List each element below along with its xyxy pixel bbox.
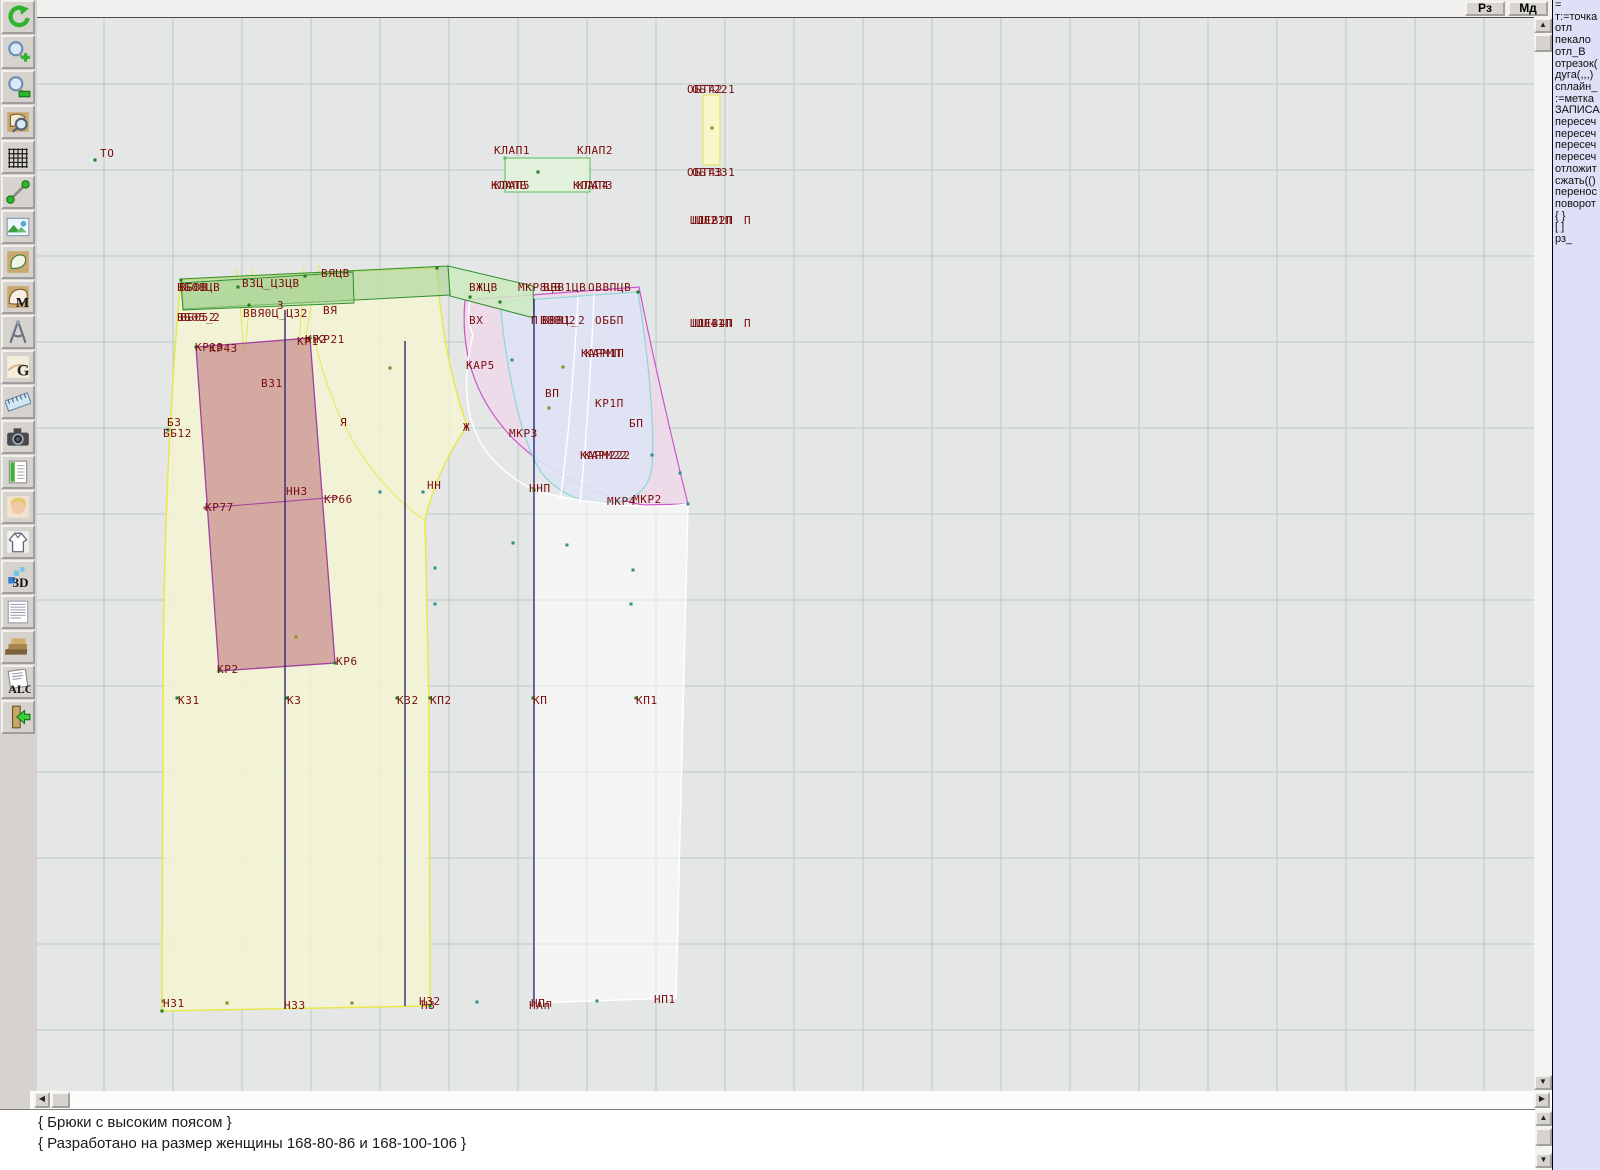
front-leg-piece[interactable] — [534, 490, 688, 1003]
construction-point — [562, 366, 565, 369]
pattern-label: НЗЗ — [284, 999, 306, 1012]
command-item[interactable]: = — [1553, 0, 1600, 12]
construction-point — [226, 1002, 229, 1005]
pattern-label: КЗ — [287, 694, 301, 707]
ruler-icon — [5, 389, 31, 415]
undo-button[interactable] — [1, 0, 35, 34]
construction-point — [566, 544, 569, 547]
command-item[interactable]: [ ] — [1553, 222, 1600, 234]
construction-point — [389, 367, 392, 370]
construction-point — [434, 567, 437, 570]
zoom-piece-button[interactable] — [1, 105, 35, 139]
pattern-label: КП — [533, 694, 547, 707]
zoom-in-button[interactable] — [1, 35, 35, 69]
pattern-label: КП1 — [636, 694, 658, 707]
segment-button[interactable] — [1, 175, 35, 209]
pattern-label: КАР5 — [466, 359, 495, 372]
camera-icon — [5, 424, 31, 450]
alg-button[interactable]: ALG — [1, 665, 35, 699]
canvas-hscrollbar[interactable]: ◀ ▶ — [30, 1091, 1552, 1109]
construction-point — [469, 296, 472, 299]
pattern-label: КР4З — [209, 342, 238, 355]
pattern-label: ВВВЦ2 — [540, 314, 576, 327]
pattern-label: МКР2 — [633, 493, 662, 506]
3d-icon: 3D — [5, 564, 31, 590]
construction-point — [304, 275, 307, 278]
svg-text:ALG: ALG — [8, 682, 31, 695]
pattern-piece-button[interactable] — [1, 245, 35, 279]
pattern-label: КР21 — [316, 333, 345, 346]
zoom-in-icon — [5, 39, 31, 65]
construction-point — [422, 491, 425, 494]
rz-button[interactable]: Рз — [1465, 1, 1505, 16]
pattern-label: БП — [629, 417, 643, 430]
command-list: =т:=точкаотлпекалоотл_Вотрезок(дуга(,,,)… — [1553, 0, 1600, 246]
compass-icon — [5, 319, 31, 345]
construction-point — [476, 1001, 479, 1004]
status-line-1: { Брюки с высоким поясом } — [38, 1114, 1535, 1131]
pattern-label: ТО — [100, 147, 114, 160]
table-icon — [5, 459, 31, 485]
command-item[interactable]: перенос — [1553, 187, 1600, 199]
status-scroll-down-button[interactable]: ▼ — [1535, 1153, 1552, 1168]
command-item[interactable]: пересеч — [1553, 140, 1600, 152]
construction-point — [436, 267, 439, 270]
pattern-label: ВЗЦ_ЦЗЦВ — [242, 277, 300, 290]
construction-point — [512, 542, 515, 545]
pattern-label: ВП — [545, 387, 559, 400]
pattern-label: З — [277, 299, 284, 312]
undo-icon — [5, 4, 31, 30]
image-icon — [5, 214, 31, 240]
garment-button[interactable] — [1, 525, 35, 559]
segment-icon — [5, 179, 31, 205]
command-item[interactable]: пересеч — [1553, 129, 1600, 141]
pattern-label: КЛАПБ — [491, 179, 527, 192]
construction-point — [711, 127, 714, 130]
construction-point — [499, 301, 502, 304]
garment-icon — [5, 529, 31, 555]
pattern-label: ОББП — [595, 314, 624, 327]
pattern-label: П — [744, 317, 751, 330]
image-button[interactable] — [1, 210, 35, 244]
pattern-canvas[interactable]: ТОКЛАП1КЛАП2КЛАП5КЛАПБКЛАП3КЛАП4ОБТ221ОБ… — [37, 17, 1534, 1091]
pattern-label: КР1П — [595, 397, 624, 410]
pattern-label: КЛАП1 — [494, 144, 530, 157]
command-item[interactable]: пересеч — [1553, 152, 1600, 164]
pattern-label: КР77 — [205, 501, 234, 514]
pattern-label: ВХ — [469, 314, 483, 327]
scroll-down-button[interactable]: ▼ — [1534, 1075, 1552, 1090]
pattern-label: НЗ — [421, 999, 435, 1012]
exit-button[interactable] — [1, 700, 35, 734]
construction-point — [679, 472, 682, 475]
pattern-label: КЗ1 — [178, 694, 200, 707]
portrait-button[interactable] — [1, 490, 35, 524]
pattern-label: ВВЯ0Ц_Ц32 — [243, 307, 308, 320]
books-button[interactable] — [1, 630, 35, 664]
construction-point — [237, 286, 240, 289]
pattern-label: ВЗ1 — [261, 377, 283, 390]
pattern-label: ОБТ42 — [687, 83, 723, 96]
pattern-label: НН — [427, 479, 441, 492]
pattern-label: ББ12 — [163, 427, 192, 440]
command-item[interactable]: отл — [1553, 23, 1600, 35]
pattern-label: КЛАП4 — [573, 179, 609, 192]
command-item[interactable]: отл_В — [1553, 47, 1600, 59]
pattern-label: КР66 — [324, 493, 353, 506]
pattern-label: ОБТ43 — [687, 166, 723, 179]
pattern-cad-window: M G 3D ALG Рз Мд — [0, 0, 1600, 1170]
command-item[interactable]: сжать(() — [1553, 176, 1600, 188]
svg-text:G: G — [17, 362, 30, 380]
construction-point — [548, 407, 551, 410]
zoom-out-icon — [5, 74, 31, 100]
pattern-label: ШЛ21П — [696, 214, 732, 227]
svg-text:M: M — [16, 295, 29, 310]
command-item[interactable]: рз_ — [1553, 234, 1600, 246]
books-icon — [5, 634, 31, 660]
3d-button[interactable]: 3D — [1, 560, 35, 594]
text-list-button[interactable] — [1, 595, 35, 629]
construction-point — [351, 1002, 354, 1005]
status-panel: { Брюки с высоким поясом } { Разработано… — [0, 1109, 1535, 1170]
grazia-g-icon: G — [5, 354, 31, 380]
construction-point — [434, 603, 437, 606]
pattern-label: ВЯ — [323, 304, 337, 317]
construction-point — [379, 491, 382, 494]
pattern-label: НН3 — [286, 485, 308, 498]
canvas-vscrollbar[interactable]: ▲ ▼ — [1534, 17, 1552, 1091]
portrait-icon — [5, 494, 31, 520]
pattern-label: П — [744, 214, 751, 227]
toolbar: M G 3D ALG — [0, 0, 37, 1090]
pattern-m-icon: M — [5, 284, 31, 310]
pattern-label: Ж — [463, 421, 470, 434]
command-item[interactable]: сплайн_ — [1553, 82, 1600, 94]
command-item[interactable]: :=метка — [1553, 94, 1600, 106]
hscroll-thumb[interactable] — [51, 1092, 70, 1108]
scroll-up-button[interactable]: ▲ — [1534, 18, 1552, 33]
pattern-label: ОВВПЦВ — [588, 281, 631, 294]
pattern-label: ВЖЦВ — [469, 281, 498, 294]
command-item[interactable]: отрезок( — [1553, 59, 1600, 71]
pattern-m-button[interactable]: M — [1, 280, 35, 314]
pattern-label: ВБ052 — [180, 311, 216, 324]
pattern-label: НП1 — [654, 993, 676, 1006]
pattern-label: ННП — [529, 482, 551, 495]
top-strip: Рз Мд — [37, 0, 1552, 17]
zoom-out-button[interactable] — [1, 70, 35, 104]
pattern-label: КЗ2 — [397, 694, 419, 707]
pattern-label: КЛАП2 — [577, 144, 613, 157]
construction-point — [630, 603, 633, 606]
construction-point — [94, 159, 97, 162]
grid-button[interactable] — [1, 140, 35, 174]
grazia-g-button[interactable]: G — [1, 350, 35, 384]
construction-point — [637, 291, 640, 294]
belt-strip-piece[interactable] — [703, 95, 720, 165]
construction-point — [651, 454, 654, 457]
command-item[interactable]: пекало — [1553, 35, 1600, 47]
status-line-2: { Разработано на размер женщины 168-80-8… — [38, 1135, 1535, 1152]
command-item[interactable]: ЗАПИСА — [1553, 105, 1600, 117]
construction-point — [596, 1000, 599, 1003]
pattern-label: КР6 — [336, 655, 358, 668]
pattern-label: КП2 — [430, 694, 452, 707]
camera-button[interactable] — [1, 420, 35, 454]
grid-icon — [5, 144, 31, 170]
pattern-label: НАп — [529, 999, 551, 1012]
status-vscrollbar[interactable]: ▲ ▼ — [1535, 1109, 1552, 1170]
exit-icon — [5, 704, 31, 730]
pattern-label: Я — [340, 416, 347, 429]
pattern-label: МКР4 — [607, 495, 636, 508]
md-button[interactable]: Мд — [1508, 1, 1548, 16]
pattern-label: МКР3 — [509, 427, 538, 440]
construction-point — [537, 171, 540, 174]
svg-text:3D: 3D — [13, 575, 29, 590]
pattern-label: ВБ0В — [179, 281, 208, 294]
command-item[interactable]: пересеч — [1553, 117, 1600, 129]
pattern-label: ВВВ1ЦВ — [543, 281, 586, 294]
scroll-right-button[interactable]: ▶ — [1534, 1092, 1550, 1108]
command-item[interactable]: { } — [1553, 211, 1600, 223]
zoom-piece-icon — [5, 109, 31, 135]
command-item[interactable]: дуга(,,,) — [1553, 70, 1600, 82]
alg-icon: ALG — [5, 669, 31, 695]
command-item[interactable]: т:=точка — [1553, 12, 1600, 24]
text-list-icon — [5, 599, 31, 625]
ruler-button[interactable] — [1, 385, 35, 419]
status-scroll-up-button[interactable]: ▲ — [1535, 1111, 1552, 1126]
vscroll-thumb[interactable] — [1534, 34, 1552, 52]
command-panel: =т:=точкаотлпекалоотл_Вотрезок(дуга(,,,)… — [1552, 0, 1600, 1170]
construction-point — [632, 569, 635, 572]
pattern-label: ШЛ41П — [696, 317, 732, 330]
pattern-piece-icon — [5, 249, 31, 275]
pattern-label: КР2 — [217, 663, 239, 676]
command-item[interactable]: поворот — [1553, 199, 1600, 211]
pattern-label: П — [531, 314, 538, 327]
table-button[interactable] — [1, 455, 35, 489]
compass-button[interactable] — [1, 315, 35, 349]
pattern-label: ВЯЦВ — [321, 267, 350, 280]
pattern-label: НЗ1 — [163, 997, 185, 1010]
construction-point — [687, 503, 690, 506]
pattern-label: КАРМП — [585, 347, 621, 360]
status-vscroll-thumb[interactable] — [1535, 1128, 1552, 1146]
scroll-left-button[interactable]: ◀ — [34, 1092, 50, 1108]
construction-point — [295, 636, 298, 639]
command-item[interactable]: отложит — [1553, 164, 1600, 176]
pattern-label: КАРМ22 — [584, 449, 627, 462]
construction-point — [511, 359, 514, 362]
